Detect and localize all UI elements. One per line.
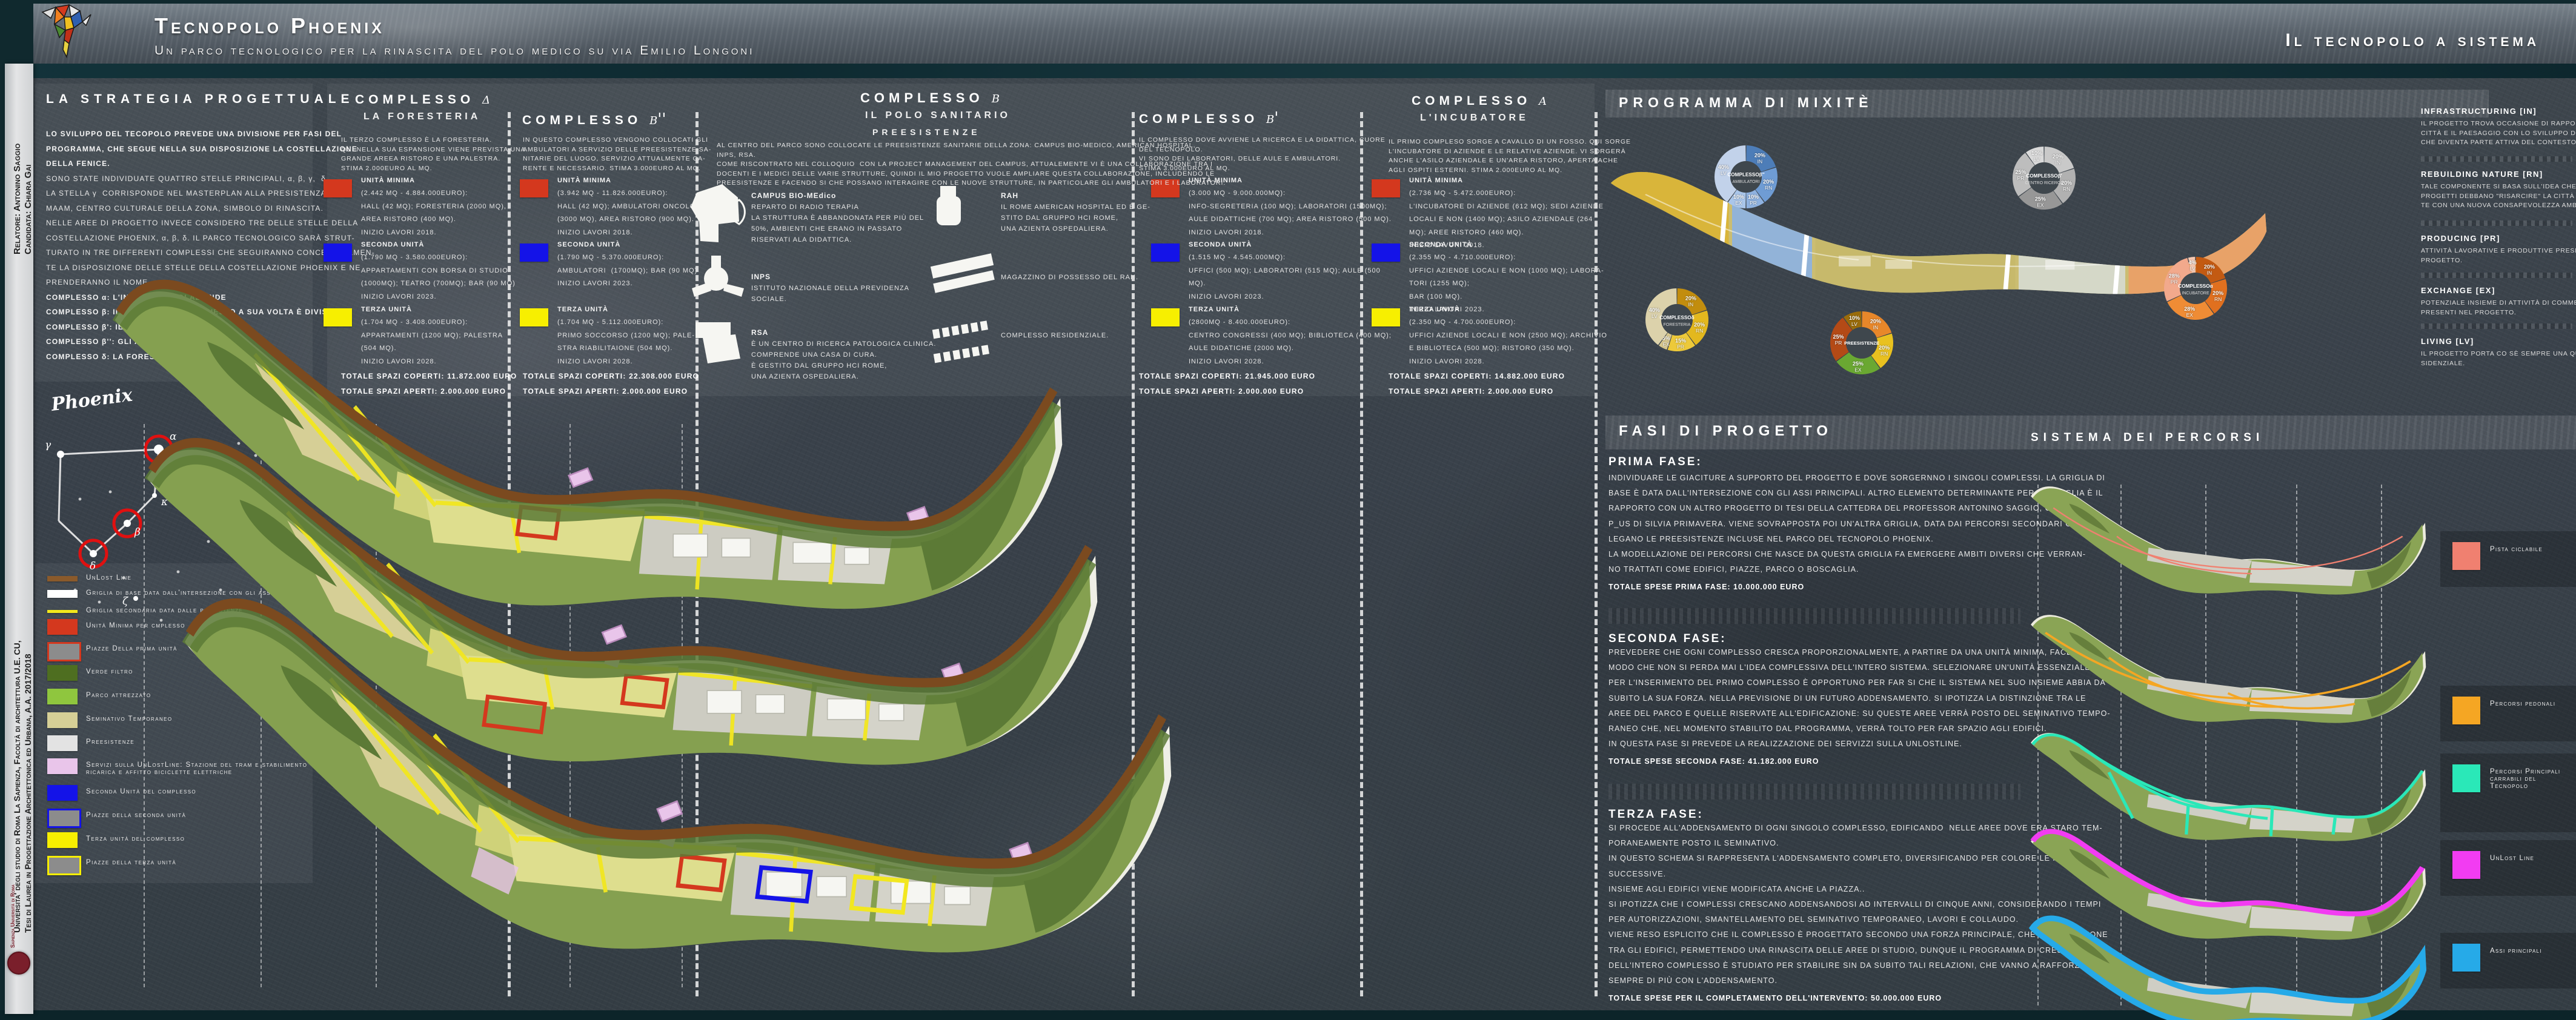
- column-title: COMPLESSO β': [1139, 109, 1278, 127]
- mixite-block-line: POTENZIALE INSIEME DI ATTIVITÀ DI COMMER…: [2421, 299, 2576, 306]
- fase-line: SUCCESSIVE.: [1608, 870, 1666, 878]
- unit-detail-line: (2.442 MQ - 4.884.000EURO):: [361, 190, 468, 197]
- poster-board: Tecnopolo Phoenix Un parco tecnologico p…: [0, 0, 2576, 1020]
- unit-detail-line: INIZIO LAVORI 2023.: [1189, 293, 1264, 300]
- svg-text:LV: LV: [1721, 170, 1727, 176]
- svg-text:RN: RN: [1696, 328, 1703, 334]
- svg-text:RN: RN: [1881, 351, 1888, 357]
- svg-text:20%: 20%: [2204, 263, 2215, 270]
- column-title: COMPLESSO δ: [355, 90, 490, 108]
- unit-name: TERZA UNITÀ: [1189, 306, 1240, 313]
- sidebar-credits-relatore: Relatore: Antonino Saggio: [12, 144, 22, 254]
- unit-swatch: [324, 179, 352, 197]
- column-title: COMPLESSO α: [1412, 91, 1547, 109]
- unit-detail-line: AULE DIDATTICHE (700 MQ); AREA RISTORO (…: [1189, 216, 1392, 223]
- unit-detail-line: HALL (42 MQ); FORESTERIA (2000 MQ),: [361, 203, 506, 210]
- unit-swatch: [1372, 179, 1400, 197]
- column-intro-line: IL TERZO COMPLESSO È LA FORESTERIA.: [341, 136, 492, 144]
- column-total-line: TOTALE SPAZI APERTI: 2.000.000 EURO: [1389, 387, 1553, 396]
- svg-text:20%: 20%: [2053, 153, 2063, 159]
- unit-detail-line: (2.355 MQ - 4.710.000EURO):: [1409, 254, 1516, 261]
- unit-swatch: [520, 179, 548, 197]
- legend-label: Terza unità del complesso: [86, 835, 185, 843]
- unit-detail-line: INIZIO LAVORI 2018.: [1189, 229, 1264, 236]
- svg-text:COMPLESSOβ': COMPLESSOβ': [2026, 173, 2062, 179]
- svg-text:25%: 25%: [2035, 196, 2046, 202]
- strategy-line: SONO STATE INDIVIDUATE QUATTRO STELLE PR…: [46, 174, 329, 183]
- fase-heading: TERZA FASE:: [1608, 808, 1704, 821]
- fase-line: SUBITO LA SUA FORZA. NELLA PREVISIONE DI…: [1608, 694, 2086, 703]
- unit-detail-line: (2.350 MQ - 4.700.000EURO):: [1409, 319, 1516, 326]
- svg-text:20%: 20%: [1694, 322, 1705, 328]
- fase-total: TOTALE SPESE PER IL COMPLETAMENTO DELL'I…: [1608, 994, 1942, 1002]
- legend-label: Verde filtro: [86, 668, 133, 675]
- unit-detail-line: (3.000 MQ - 9.000.000MQ):: [1189, 190, 1286, 197]
- sidebar-credits-candidata: Candidata: Chiara Gai: [23, 165, 33, 254]
- strategy-line: PROGRAMMA, CHE SEGUE NELLA SUA DISPOSIZI…: [46, 145, 357, 153]
- column-intro-line: ANCHE L'ASILO AZIENDALE E UN'AREA RISTOR…: [1389, 157, 1618, 164]
- fasi-heading: FASI DI PROGETTO: [1619, 423, 1833, 440]
- svg-text:25%: 25%: [1853, 361, 1864, 367]
- column-intro-line: IN QUESTO COMPLESSO VENGONO COLLOCATI GL…: [523, 136, 708, 144]
- svg-text:IN: IN: [2207, 270, 2213, 276]
- mixite-heading: PROGRAMMA DI MIXITÈ: [1619, 94, 1873, 111]
- unit-name: UNITÀ MINIMA: [361, 177, 415, 184]
- fase-line: NO TRATTATI COME EDIFICI, PIAZZE, PARCO …: [1608, 565, 1859, 574]
- unit-name: UNITÀ MINIMA: [557, 177, 611, 184]
- fase-total: TOTALE SPESE SECONDA FASE: 41.182.000 EU…: [1608, 757, 1819, 766]
- unit-detail-line: (3000 MQ), AREA RISTORO (900 MQ).: [557, 216, 694, 223]
- svg-text:20%: 20%: [1685, 295, 1696, 301]
- fase-total: TOTALE SPESE PRIMA FASE: 10.000.000 EURO: [1608, 583, 1804, 591]
- svg-text:EX: EX: [1854, 367, 1862, 373]
- strategy-line: DELLA FENICE.: [46, 159, 110, 168]
- mixite-block-title: EXCHANGE [EX]: [2421, 286, 2495, 295]
- fase-line: MODO CHE NON SI PERDA MAI L'IDEA COMPLES…: [1608, 663, 2091, 672]
- unit-detail-line: UFFICI (500 MQ); LABORATORI (515 MQ); AU…: [1189, 267, 1381, 274]
- svg-text:COMPLESSOδ: COMPLESSOδ: [1659, 315, 1694, 320]
- dashed-separator: [1595, 112, 1598, 996]
- svg-text:IN: IN: [1688, 301, 1694, 307]
- svg-text:15%: 15%: [1675, 338, 1686, 344]
- strategy-line: LA STELLA γ CORRISPONDE NEL MASTERPLAN A…: [46, 189, 345, 197]
- polo-pre-heading: PREESISTENZE: [872, 127, 981, 137]
- unit-swatch: [1151, 243, 1180, 262]
- dashed-separator: [1360, 112, 1363, 996]
- svg-text:10%: 10%: [1733, 194, 1744, 200]
- mixite-block-title: INFRASTRUCTURING [IN]: [2421, 107, 2537, 116]
- mixite-block-title: LIVING [LV]: [2421, 337, 2474, 346]
- svg-text:10%: 10%: [1748, 194, 1759, 200]
- svg-text:PREESISTENZE: PREESISTENZE: [1844, 340, 1879, 346]
- legend-swatch: [47, 576, 78, 581]
- svg-text:AMBULATORI: AMBULATORI: [1733, 180, 1760, 184]
- unit-detail-line: UFFICI AZIENDE LOCALI E NON (2500 MQ); A…: [1409, 332, 1607, 339]
- fase-line: IN QUESTA FASE SI PREVEDE LA REALIZZAZIO…: [1608, 740, 1962, 748]
- percorsi-legend-label: Pista ciclabile: [2490, 546, 2543, 553]
- svg-text:PR: PR: [1677, 344, 1684, 350]
- strategy-heading: LA STRATEGIA PROGETTUALE: [46, 92, 354, 107]
- legend-label: Piazze della seconda unità: [86, 812, 186, 819]
- mixite-block-line: IL PROGETTO PORTA CO SÈ SEMPRE UNA QUOTA…: [2421, 350, 2576, 357]
- mixite-block-line: SIDENZIALE.: [2421, 360, 2465, 367]
- teal-divider-band: [5, 64, 2576, 78]
- svg-text:LV: LV: [2034, 156, 2040, 162]
- legend-swatch: [47, 590, 78, 598]
- polo-subtitle: IL POLO SANITARIO: [865, 110, 1011, 121]
- svg-text:28%: 28%: [2184, 306, 2195, 312]
- fase-heading: SECONDA FASE:: [1608, 632, 1727, 646]
- percorsi-legend-label: Assi principali: [2490, 947, 2542, 955]
- svg-text:40%: 40%: [1649, 307, 1660, 313]
- svg-text:20%: 20%: [1870, 318, 1881, 324]
- mixite-block-line: PROGETTI DEBBANO "RISARCIRE" LA CITTÀ ES…: [2421, 193, 2576, 200]
- svg-text:LV: LV: [1651, 313, 1658, 319]
- svg-text:EX: EX: [1735, 200, 1742, 206]
- column-title: COMPLESSO β'': [522, 110, 666, 128]
- unit-name: SECONDA UNITÀ: [1409, 241, 1472, 248]
- unit-swatch: [1151, 308, 1180, 326]
- strategy-line: NELLE AREE DI PROGETTO INVECE CONSIDERO …: [46, 219, 358, 227]
- fase-line: LA MODELLAZIONE DEI PERCORSI CHE NASCE D…: [1608, 550, 2086, 558]
- legend-swatch: [47, 809, 81, 828]
- fase-divider: [1608, 784, 2020, 800]
- legend-swatch: [47, 832, 78, 848]
- fase-line: SI IPOTIZZA CHE I COMPLESSI CRESCANO ADD…: [1608, 900, 2101, 909]
- legend-swatch: [47, 856, 81, 875]
- column-total-line: TOTALE SPAZI APERTI: 2.000.000 EURO: [1139, 387, 1304, 396]
- unit-detail-line: INFO-SEGRETERIA (100 MQ); LABORATORI (15…: [1189, 203, 1387, 210]
- unit-detail-line: MQ); AREE RISTORO (460 MQ).: [1409, 229, 1524, 236]
- svg-text:20%: 20%: [1754, 152, 1765, 158]
- svg-text:10%: 10%: [1849, 315, 1860, 321]
- percorsi-heading: SISTEMA DEI PERCORSI: [2031, 431, 2264, 445]
- percorsi-legend-label: UnLost Line: [2490, 855, 2534, 862]
- unit-name: UNITÀ MINIMA: [1409, 177, 1463, 184]
- mixite-divider: [2421, 156, 2572, 162]
- column-intro-line: NITARIE DEL LUOGO, SERVIZIO ATTUALMENTE …: [523, 155, 706, 162]
- mixite-block-line: PROGETTO.: [2421, 257, 2463, 264]
- svg-text:FORESTERIA: FORESTERIA: [1664, 323, 1691, 327]
- column-subtitle: L'INCUBATORE: [1420, 113, 1529, 124]
- header: Tecnopolo Phoenix Un parco tecnologico p…: [33, 4, 2576, 64]
- mixite-block-line: IL PROGETTO TROVA OCCASIONE DI RAPPORTAR…: [2421, 120, 2576, 127]
- unit-detail-line: AULE DIDATICHE (2000 MQ).: [1189, 345, 1294, 352]
- svg-text:PR: PR: [1835, 340, 1842, 346]
- unit-detail-line: INIZIO LAVORI 2028.: [1409, 358, 1485, 365]
- svg-text:20%: 20%: [1879, 345, 1890, 351]
- strategy-line: MAAM, CENTRO CULTURALE DELLA ZONA, SIMBO…: [46, 204, 324, 213]
- unit-detail-line: TORI (1255 MQ);: [1409, 280, 1470, 287]
- unit-detail-line: L'INCUBATORE DI AZIENDE (612 MQ); SEDI A…: [1409, 203, 1604, 210]
- fase-line: SI PROCEDE ALL'ADDENSAMENTO DI OGNI SING…: [1608, 824, 2103, 832]
- unit-detail-line: (3.942 MQ - 11.826.000EURO):: [557, 190, 668, 197]
- legend-swatch: [47, 665, 78, 681]
- svg-text:IN: IN: [2056, 159, 2061, 165]
- legend-swatch: [47, 758, 78, 774]
- percorsi-legend-swatch: [2452, 944, 2480, 972]
- phoenix-logo-icon: [38, 1, 104, 64]
- mixite-block-line: TE CON UNA NUOVA CONSAPEVOLEZZA AMBIENTA…: [2421, 202, 2576, 209]
- mixite-block-title: PRODUCING [PR]: [2421, 234, 2500, 243]
- mixite-block-title: REBUILDING NATURE [RN]: [2421, 170, 2543, 179]
- sapienza-logo-icon: [7, 952, 30, 975]
- fase-line: INSIEME AGLI EDIFICI VIENE MODIFICATA AN…: [1608, 885, 1865, 893]
- percorsi-legend-swatch: [2452, 851, 2480, 879]
- unit-detail-line: INIZIO LAVORI 2028.: [1189, 358, 1264, 365]
- unit-detail-line: (2800MQ - 8.400.000EURO):: [1189, 319, 1290, 326]
- svg-text:25%: 25%: [2015, 169, 2026, 175]
- polo-intro-line: AL CENTRO DEL PARCO SONO COLLOCATE LE PR…: [717, 142, 1196, 149]
- fase-heading: PRIMA FASE:: [1608, 455, 1702, 469]
- svg-text:10%: 10%: [2031, 150, 2042, 156]
- svg-text:40%: 40%: [1718, 164, 1729, 170]
- unit-swatch: [1372, 308, 1400, 326]
- unit-name: TERZA UNITÀ: [1409, 306, 1460, 313]
- svg-text:PR: PR: [2017, 175, 2025, 181]
- unit-detail-line: MQ).: [1189, 280, 1206, 287]
- svg-text:δ: δ: [90, 560, 96, 572]
- polo-title: COMPLESSO β: [860, 88, 1000, 107]
- section-title-right: Il tecnopolo a sistema: [2285, 30, 2540, 51]
- svg-text:EX: EX: [2037, 202, 2044, 208]
- fase-line: DELL'INTERO COMPLESSO È STUDIATO PER STA…: [1608, 961, 2100, 970]
- fase-line: PER AUTORIZZAZIONI, SMANTELLAMENTO DEL S…: [1608, 915, 2019, 924]
- fase-line: PREVEDERE CHE OGNI COMPLESSO CRESCA PROP…: [1608, 648, 2102, 657]
- sapienza-logo: Sapienza Università di Roma: [7, 948, 32, 975]
- legend-swatch: [47, 735, 78, 751]
- svg-text:LV: LV: [2189, 265, 2196, 271]
- fase-line: RAPPORTO CON UN ALTRO PROGETTO DI TESI D…: [1608, 504, 2067, 512]
- legend-swatch: [47, 785, 78, 801]
- percorsi-legend-swatch: [2452, 697, 2480, 724]
- mixite-block-line: CITTÀ E IL PAESAGGIO CON LO SVILUPPO DI …: [2421, 130, 2576, 137]
- fase-divider: [1608, 608, 2020, 624]
- page-title: Tecnopolo Phoenix: [154, 13, 385, 39]
- svg-text:EX: EX: [1663, 342, 1670, 348]
- masterplan-phase-3: [182, 544, 1172, 993]
- fase-line: TRA GLI EDIFICI, PERMETTENDO UNA RINASCI…: [1608, 946, 2082, 955]
- svg-text:CENTRO RICERCA: CENTRO RICERCA: [2025, 181, 2063, 185]
- mixite-block-line: TALE COMPONENTE SI BASA SULL'IDEA CHE I …: [2421, 183, 2576, 190]
- column-intro-line: L'INCUBATORE DI AZIENDE E LE RELATIVE AZ…: [1389, 148, 1626, 155]
- svg-text:25%: 25%: [1833, 334, 1844, 340]
- svg-text:PR: PR: [1750, 200, 1757, 206]
- mixite-block-line: PRESENTI NEL PROGETTO.: [2421, 309, 2517, 316]
- legend-swatch: [47, 642, 81, 661]
- percorsi-legend-swatch: [2452, 764, 2480, 792]
- legend-label: Parco attrezzato: [86, 692, 151, 699]
- svg-text:COMPLESSOβ'': COMPLESSOβ'': [1727, 172, 1764, 177]
- unit-detail-line: CENTRO CONGRESSI (400 MQ); BIBLIOTECA (4…: [1189, 332, 1392, 339]
- svg-text:4%: 4%: [2189, 259, 2197, 265]
- donut-chart-COMPLESSOδ: 20%IN20%RN15%PR5%EX40%LVCOMPLESSOδFOREST…: [1644, 286, 1710, 353]
- svg-text:IN: IN: [1758, 158, 1763, 164]
- column-intro-line: AGLI OSPITI ESTERNI. STIMA 2.000EURO AL …: [1389, 167, 1562, 174]
- polo-intro-line: INPS, RSA.: [717, 151, 756, 159]
- column-total-line: TOTALE SPAZI COPERTI: 14.882.000 EURO: [1389, 372, 1565, 380]
- svg-text:20%: 20%: [2213, 290, 2223, 296]
- legend-label: Preesistenze: [86, 738, 134, 746]
- percorsi-legend-label: Percorsi Principalicarrabili delTecnopol…: [2490, 768, 2560, 790]
- percorsi-diagram-1: [2030, 465, 2426, 608]
- unit-detail-line: BAR (100 MQ).: [1409, 293, 1462, 300]
- donut-chart-COMPLESSOα: 20%IN20%RN28%EX28%PR4%LVCOMPLESSOαINCUBA…: [2162, 255, 2229, 322]
- unit-detail-line: AREA RISTORO (400 MQ).: [361, 216, 456, 223]
- column-total-line: TOTALE SPAZI COPERTI: 21.945.000 EURO: [1139, 372, 1315, 380]
- unit-detail-line: (2.736 MQ - 5.472.000EURO):: [1409, 190, 1516, 197]
- column-intro-line: STIMA 2.000EURO AL MQ.: [341, 165, 433, 172]
- mixite-divider: [2421, 323, 2572, 329]
- fase-line: PORANEAMENTE POSTO IL SEMINATIVO.: [1608, 839, 1779, 847]
- fase-line: IN QUESTO SCHEMA SI RAPPRESENTA L'ADDENS…: [1608, 854, 2072, 863]
- svg-text:RN: RN: [1765, 185, 1772, 191]
- svg-text:RN: RN: [2214, 296, 2222, 302]
- svg-text:20%: 20%: [1763, 179, 1774, 185]
- unit-swatch: [1372, 243, 1400, 262]
- fase-line: RANEO CHE, NEL MOMENTO STABILITO DAL PRO…: [1608, 724, 2047, 733]
- donut-chart-PREESISTENZE: 20%IN20%RN25%EX25%PR10%LVPREESISTENZE: [1828, 310, 1895, 376]
- unit-detail-line: LOCALI E NON (1400 MQ); ASILO AZIENDALE …: [1409, 216, 1593, 223]
- svg-text:RN: RN: [2063, 186, 2070, 192]
- legend-swatch: [47, 712, 78, 728]
- unit-detail-line: (1.515 MQ - 4.545.000MQ):: [1189, 254, 1286, 261]
- column-intro-line: GRANDE AREEA RISTORO E UNA PALESTRA.: [341, 155, 500, 162]
- fase-line: SEMPRE DI PIÙ CON L'ADDENSAMENTO.: [1608, 976, 1778, 985]
- unit-detail-line: UFFICI AZIENDE LOCALI E NON (1000 MQ); L…: [1409, 267, 1604, 274]
- percorsi-legend-label: Percorsi pedonali: [2490, 700, 2555, 707]
- svg-text:COMPLESSOα: COMPLESSOα: [2178, 283, 2213, 289]
- donut-chart-COMPLESSOβ': 20%IN20%RN25%EX25%PR10%LVCOMPLESSOβ'CENT…: [2011, 145, 2077, 211]
- legend-swatch: [47, 689, 78, 704]
- sidebar-university-line2: Tesi di Laurea in Progettazione Architet…: [23, 654, 33, 933]
- column-intro-line: IL PRIMO COMPLESO SORGE A CAVALLO DI UN …: [1389, 138, 1631, 145]
- fase-line: LEGANO LE PREESISTENZE INCLUSE NEL PARCO…: [1608, 535, 1934, 543]
- percorsi-legend-swatch: [2452, 542, 2480, 570]
- svg-text:EX: EX: [2186, 312, 2194, 318]
- svg-text:IN: IN: [1873, 324, 1879, 330]
- legend-swatch: [47, 610, 78, 613]
- svg-text:LV: LV: [1851, 321, 1857, 327]
- mixite-block-line: ATTIVITÀ LAVORATIVE E PRODUTTIVE PRESENT…: [2421, 247, 2576, 254]
- page-subtitle: Un parco tecnologico per la rinascita de…: [154, 44, 754, 58]
- column-subtitle: LA FORESTERIA: [363, 111, 480, 122]
- fase-line: P_US DI SILVIA PRIMAVERA. VIENE SOVRAPPO…: [1608, 520, 2083, 528]
- legend-swatch: [47, 619, 78, 635]
- mixite-block-line: CHE DIVENTA PARTE ATTIVA DEL CONTESTO.: [2421, 139, 2576, 146]
- column-intro-line: RENTE E NECESSARIO. STIMA 3.000EURO AL M…: [523, 165, 701, 172]
- mixite-divider: [2421, 273, 2572, 278]
- strategy-line: LO SVILUPPO DEL TECOPOLO PREVEDE UNA DIV…: [46, 130, 342, 138]
- svg-text:PR: PR: [2171, 279, 2178, 285]
- svg-text:28%: 28%: [2169, 273, 2180, 279]
- column-intro-line: AMBULATORI A SERVIZIO DELLE PREESISTENZE…: [523, 146, 711, 153]
- svg-text:INCUBATORE: INCUBATORE: [2182, 291, 2209, 296]
- percorsi-diagram-5: [2030, 895, 2426, 1020]
- column-intro-line: QUI NELLA SUA ESPANSIONE VIENE PREVISTA …: [341, 146, 526, 153]
- unit-detail-line: E BIBLIOTECA (500 MQ); RISTORO (350 MQ).: [1409, 345, 1575, 352]
- svg-text:γ: γ: [45, 439, 51, 451]
- polo-intro-line: DOCENTI E I MEDICI DELLE VARIE STRUTTURE…: [717, 170, 1215, 177]
- mixite-divider: [2421, 220, 2572, 226]
- legend-label: Piazze della terza unità: [86, 859, 176, 866]
- donut-chart-COMPLESSOβ'': 20%IN20%RN10%PR10%EX40%LVCOMPLESSOβ''AMB…: [1713, 144, 1779, 210]
- polo-intro-line: COME RISCONTRATO NEL COLLOQUIO CON LA PR…: [717, 161, 1213, 168]
- unit-detail-line: HALL (42 MQ); AMBULATORI ONCOLOGIA: [557, 203, 709, 210]
- unit-name: SECONDA UNITÀ: [1189, 241, 1252, 248]
